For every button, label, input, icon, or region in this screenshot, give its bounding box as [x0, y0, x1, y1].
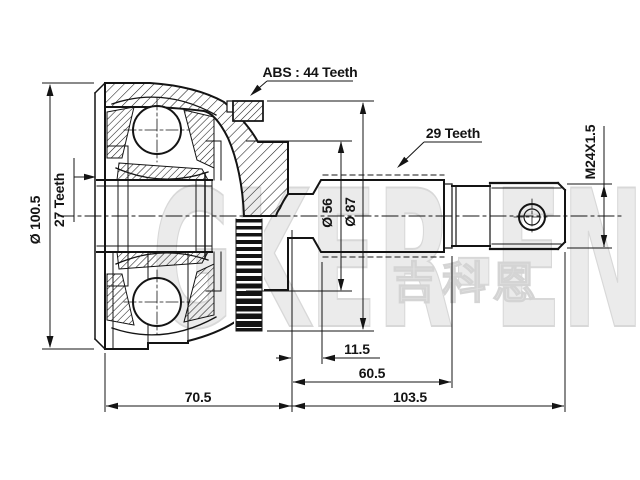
thread-spec-label: M24X1.5: [582, 124, 598, 179]
spline-section-dim: 60.5: [359, 365, 386, 381]
housing-length-dim: 70.5: [185, 389, 212, 405]
inner-spline-label: 27 Teeth: [51, 173, 67, 227]
abs-seat-diameter-label: Ø 87: [342, 197, 358, 227]
watermark-cjk-text: 吉科恩: [392, 258, 542, 309]
outer-spline-label: 29 Teeth: [426, 125, 480, 141]
abs-ring-teeth-band: [234, 218, 264, 332]
watermark: GKER-EN 吉科恩: [152, 149, 640, 371]
cv-joint-drawing-page: GKER-EN 吉科恩: [0, 0, 640, 480]
housing-diameter-label: Ø 100.5: [27, 195, 43, 244]
cv-joint-technical-drawing: GKER-EN 吉科恩: [0, 0, 640, 480]
boot-groove-diameter-label: Ø 56: [319, 198, 335, 228]
abs-teeth-label: ABS : 44 Teeth: [263, 64, 358, 80]
abs-ring-section: [227, 101, 263, 121]
groove-width-dim: 11.5: [344, 341, 370, 357]
shaft-length-dim: 103.5: [393, 389, 427, 405]
